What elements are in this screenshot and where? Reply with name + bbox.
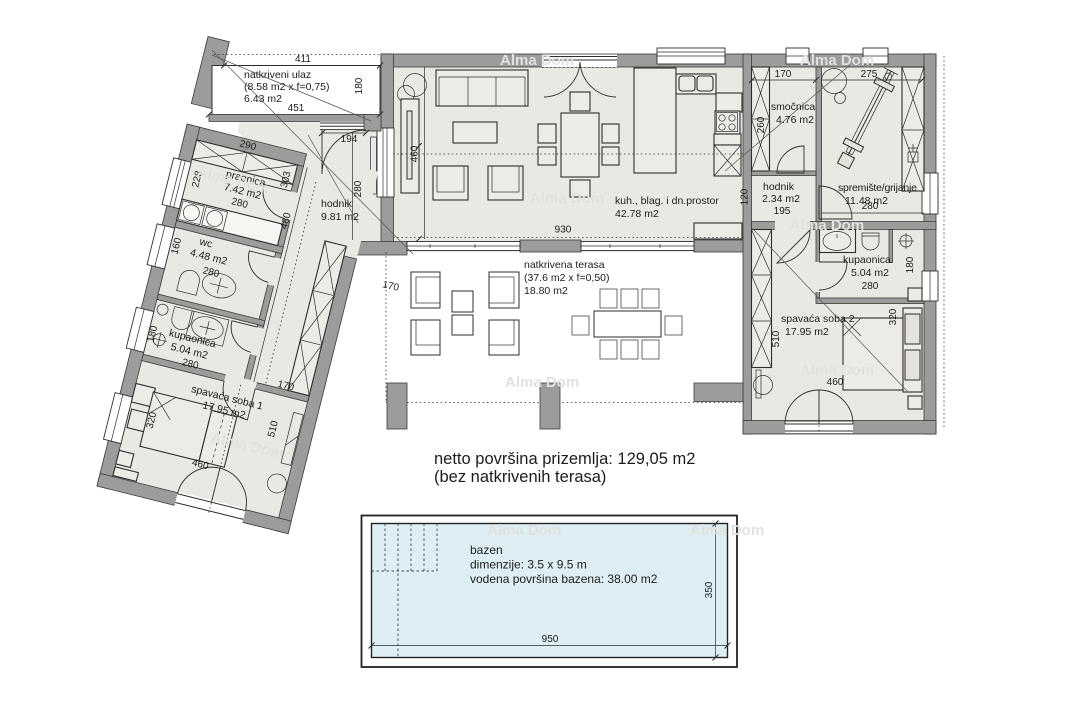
svg-text:Alma Dom: Alma Dom xyxy=(800,52,874,69)
svg-text:smočnica: smočnica xyxy=(771,101,816,113)
svg-text:spavaća soba 2: spavaća soba 2 xyxy=(781,313,855,325)
svg-text:320: 320 xyxy=(888,308,899,325)
svg-text:180: 180 xyxy=(905,256,916,273)
svg-text:510: 510 xyxy=(771,330,782,347)
svg-text:natkrivena terasa: natkrivena terasa xyxy=(524,259,605,271)
svg-text:18.80 m2: 18.80 m2 xyxy=(524,285,568,297)
svg-text:kuh., blag. i dn.prostor: kuh., blag. i dn.prostor xyxy=(615,195,719,207)
svg-text:170: 170 xyxy=(775,69,792,80)
svg-text:350: 350 xyxy=(704,581,715,598)
svg-text:260: 260 xyxy=(756,116,767,133)
svg-text:Alma Dom: Alma Dom xyxy=(800,362,874,379)
svg-text:(bez natkrivenih terasa): (bez natkrivenih terasa) xyxy=(434,468,606,486)
svg-text:280: 280 xyxy=(862,201,879,212)
svg-text:hodnik: hodnik xyxy=(763,181,795,193)
svg-text:180: 180 xyxy=(354,77,365,94)
svg-text:9.81 m2: 9.81 m2 xyxy=(321,211,359,223)
svg-text:Alma Dom: Alma Dom xyxy=(487,522,561,539)
svg-text:194: 194 xyxy=(341,134,358,145)
svg-text:411: 411 xyxy=(295,54,311,65)
svg-text:280: 280 xyxy=(353,180,364,197)
svg-text:Alma Dom: Alma Dom xyxy=(505,374,579,391)
svg-text:2.34 m2: 2.34 m2 xyxy=(762,193,800,205)
svg-text:950: 950 xyxy=(542,634,559,645)
svg-text:dimenzije: 3.5 x 9.5 m: dimenzije: 3.5 x 9.5 m xyxy=(470,558,587,572)
svg-text:6.43 m2: 6.43 m2 xyxy=(244,93,282,105)
svg-text:netto površina prizemlja: 129,: netto površina prizemlja: 129,05 m2 xyxy=(434,450,695,468)
svg-text:vodena površina bazena: 38.00: vodena površina bazena: 38.00 m2 xyxy=(470,572,658,586)
svg-text:Alma Dom: Alma Dom xyxy=(690,522,764,539)
svg-text:120: 120 xyxy=(740,188,751,205)
svg-text:(8.58 m2 x f=0,75): (8.58 m2 x f=0,75) xyxy=(244,81,330,93)
svg-text:5.04 m2: 5.04 m2 xyxy=(851,267,889,279)
svg-text:451: 451 xyxy=(288,103,305,114)
svg-text:Alma Dom: Alma Dom xyxy=(790,217,864,234)
svg-text:280: 280 xyxy=(862,281,879,292)
svg-text:(37.6 m2 x f=0,50): (37.6 m2 x f=0,50) xyxy=(524,272,610,284)
svg-text:4.76 m2: 4.76 m2 xyxy=(776,114,814,126)
svg-text:275: 275 xyxy=(861,69,878,80)
svg-text:hodnik: hodnik xyxy=(321,198,353,210)
svg-text:Alma Dom: Alma Dom xyxy=(500,52,574,69)
svg-text:930: 930 xyxy=(555,225,572,236)
svg-text:spremište/grijanje: spremište/grijanje xyxy=(838,182,917,194)
svg-text:natkriveni ulaz: natkriveni ulaz xyxy=(244,69,311,81)
svg-text:42.78 m2: 42.78 m2 xyxy=(615,208,659,220)
svg-text:Alma Dom: Alma Dom xyxy=(530,190,604,207)
svg-text:bazen: bazen xyxy=(470,543,503,557)
svg-text:kupaonica: kupaonica xyxy=(843,254,891,266)
svg-text:17.95 m2: 17.95 m2 xyxy=(785,326,829,338)
svg-text:195: 195 xyxy=(774,206,791,217)
